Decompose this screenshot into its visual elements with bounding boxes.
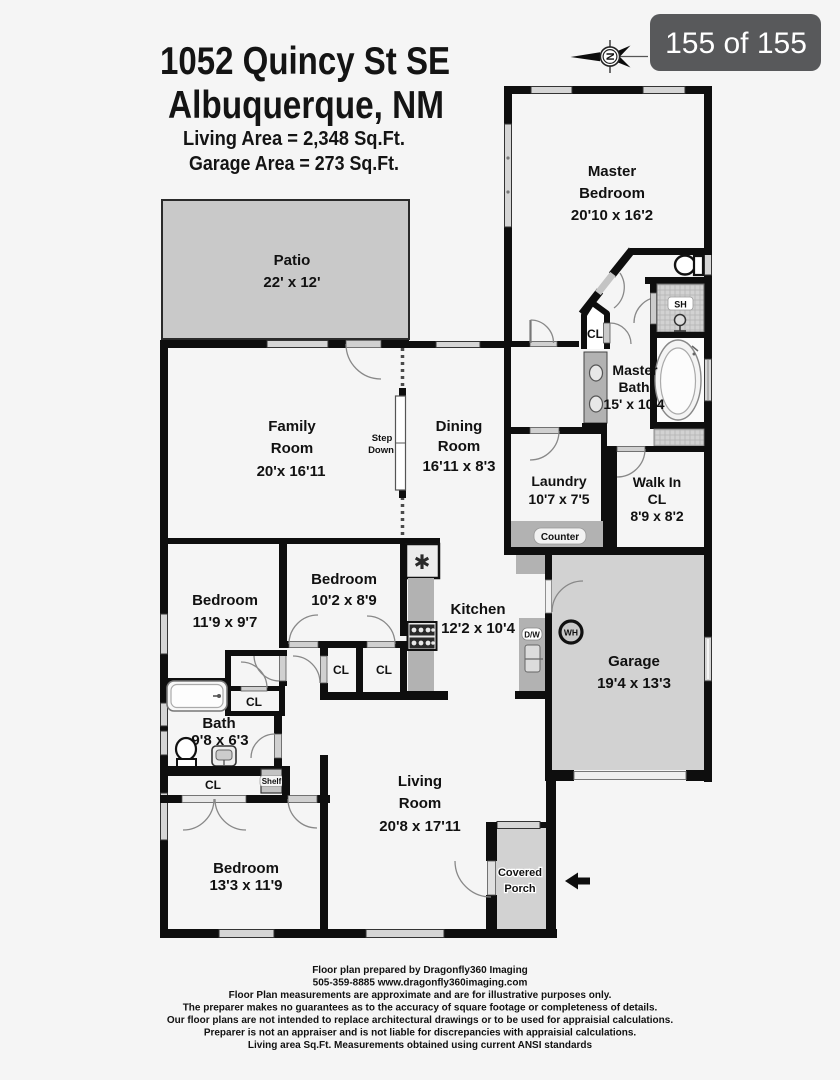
svg-text:Counter: Counter bbox=[541, 532, 579, 543]
svg-text:Covered: Covered bbox=[498, 867, 542, 879]
svg-text:20'x 16'11: 20'x 16'11 bbox=[257, 463, 326, 480]
svg-text:Room: Room bbox=[399, 795, 442, 812]
svg-text:16'11 x 8'3: 16'11 x 8'3 bbox=[422, 458, 495, 475]
svg-text:Bedroom: Bedroom bbox=[213, 860, 279, 877]
svg-text:Patio: Patio bbox=[274, 252, 311, 269]
svg-text:Family: Family bbox=[268, 418, 316, 435]
svg-text:Walk In: Walk In bbox=[633, 474, 682, 490]
svg-text:Living Area = 2,348 Sq.Ft.: Living Area = 2,348 Sq.Ft. bbox=[183, 128, 405, 150]
svg-text:Dining: Dining bbox=[436, 418, 483, 435]
svg-text:Bath: Bath bbox=[618, 379, 649, 395]
svg-text:Floor Plan measurements are ap: Floor Plan measurements are approximate … bbox=[229, 990, 612, 1001]
svg-text:Bedroom: Bedroom bbox=[579, 185, 645, 202]
svg-text:CL: CL bbox=[376, 663, 392, 677]
svg-text:Kitchen: Kitchen bbox=[450, 601, 505, 618]
svg-text:22' x 12': 22' x 12' bbox=[263, 274, 320, 291]
svg-text:10'2 x 8'9: 10'2 x 8'9 bbox=[311, 592, 377, 609]
svg-text:505-359-8885 www.dragonfly360i: 505-359-8885 www.dragonfly360imaging.com bbox=[313, 978, 528, 989]
svg-text:11'9 x 9'7: 11'9 x 9'7 bbox=[193, 614, 258, 631]
svg-text:Bedroom: Bedroom bbox=[311, 571, 377, 588]
svg-text:✱: ✱ bbox=[414, 552, 431, 574]
svg-text:Room: Room bbox=[438, 438, 481, 455]
svg-text:Living: Living bbox=[398, 773, 442, 790]
svg-text:Preparer is not an appraiser a: Preparer is not an appraiser and is not … bbox=[204, 1028, 637, 1039]
svg-text:13'3 x 11'9: 13'3 x 11'9 bbox=[209, 877, 282, 894]
svg-text:Step: Step bbox=[372, 433, 393, 444]
svg-text:SH: SH bbox=[674, 300, 687, 310]
svg-text:Our floor plans are not intend: Our floor plans are not intended to repl… bbox=[167, 1015, 673, 1026]
svg-text:D/W: D/W bbox=[524, 631, 540, 640]
svg-text:1052 Quincy St SE: 1052 Quincy St SE bbox=[160, 40, 450, 83]
svg-text:WH: WH bbox=[564, 628, 578, 638]
svg-text:12'2 x 10'4: 12'2 x 10'4 bbox=[441, 620, 516, 637]
svg-text:20'8 x 17'11: 20'8 x 17'11 bbox=[379, 818, 460, 835]
svg-text:Laundry: Laundry bbox=[531, 473, 586, 489]
svg-text:15' x 10'4: 15' x 10'4 bbox=[603, 396, 664, 412]
svg-text:Garage: Garage bbox=[608, 653, 660, 670]
svg-text:CL: CL bbox=[333, 663, 349, 677]
svg-text:Garage Area = 273 Sq.Ft.: Garage Area = 273 Sq.Ft. bbox=[189, 153, 399, 175]
svg-text:155 of 155: 155 of 155 bbox=[665, 27, 807, 60]
svg-text:Master: Master bbox=[612, 362, 658, 378]
svg-text:N: N bbox=[605, 52, 617, 60]
svg-text:CL: CL bbox=[587, 327, 603, 341]
svg-text:10'7 x 7'5: 10'7 x 7'5 bbox=[528, 491, 589, 507]
svg-text:Shelf: Shelf bbox=[262, 777, 282, 786]
svg-text:19'4 x 13'3: 19'4 x 13'3 bbox=[597, 675, 671, 692]
svg-text:Living area Sq.Ft. Measurement: Living area Sq.Ft. Measurements obtained… bbox=[248, 1040, 593, 1051]
svg-text:The preparer makes no guarante: The preparer makes no guarantees as to t… bbox=[183, 1003, 658, 1014]
svg-text:Bedroom: Bedroom bbox=[192, 592, 258, 609]
svg-text:CL: CL bbox=[648, 491, 667, 507]
svg-text:8'9 x 8'2: 8'9 x 8'2 bbox=[630, 508, 684, 524]
svg-text:Albuquerque, NM: Albuquerque, NM bbox=[168, 84, 444, 127]
svg-text:CL: CL bbox=[246, 695, 262, 709]
svg-text:Master: Master bbox=[588, 163, 637, 180]
svg-text:Room: Room bbox=[271, 440, 314, 457]
svg-text:Floor plan prepared by Dragonf: Floor plan prepared by Dragonfly360 Imag… bbox=[312, 965, 528, 976]
svg-text:Bath: Bath bbox=[202, 715, 235, 732]
svg-text:Porch: Porch bbox=[504, 883, 535, 895]
svg-text:CL: CL bbox=[205, 778, 221, 792]
svg-text:20'10 x 16'2: 20'10 x 16'2 bbox=[571, 207, 653, 224]
svg-text:Down: Down bbox=[368, 445, 394, 456]
